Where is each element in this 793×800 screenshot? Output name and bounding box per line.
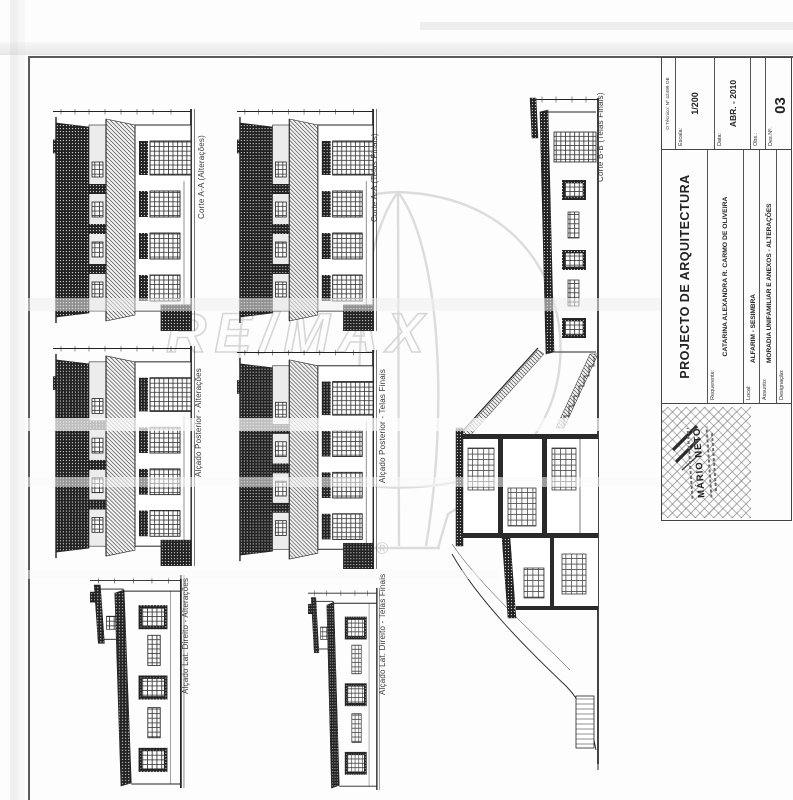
caption-alcado-posterior-telas-finais: Alçado Posterior - Telas Finais [378, 369, 387, 483]
drawing-corte-aa-alteracoes [53, 109, 196, 331]
caption-corte-bb-telas-finais: Corte B-B (Telas Finais) [596, 92, 605, 182]
drawing-corte-aa-telas-finais [237, 109, 378, 331]
field-requerente: Requerente: CATARINA ALEXANDRA R. CARMO … [708, 150, 743, 403]
field-escala: Escala: 1/200 [676, 58, 715, 149]
field-local: Local: ALFARIM - SESIMBRA [744, 150, 761, 403]
field-des-no: Des.Nº. 03 [766, 58, 791, 149]
caption-corte-aa-telas-finais: Corte A-A (Telas Finais) [370, 133, 379, 222]
scanned-architecture-sheet: RE/MAX ® Corte A-A (Alterações) Corte A-… [0, 0, 793, 800]
field-escala-label: Escala: [678, 128, 684, 146]
field-data-label: Data: [717, 133, 723, 146]
drawing-alcado-lat-direito-alteracoes [90, 575, 185, 788]
field-designacao-label: Designação: [779, 369, 785, 400]
stamp-smalltext-line [711, 432, 717, 491]
field-requerente-label: Requerente: [710, 370, 716, 400]
field-assunto-value: MORADIA UNIFAMILIAR E ANEXOS - ALTERAÇÕE… [766, 204, 773, 364]
field-technician: O Técnico: Nº 42499 OE [662, 58, 676, 149]
caption-alcado-lat-direito-telas-finais: Alçado Lat. Direito - Telas Finais [378, 574, 387, 695]
field-designacao: Designação: [777, 150, 791, 403]
titleblock-title: PROJECTO DE ARQUITECTURA [662, 150, 708, 403]
field-requerente-value: CATARINA ALEXANDRA R. CARMO DE OLIVEIRA [722, 150, 729, 403]
drawing-alcado-posterior-alteracoes [53, 346, 196, 566]
caption-alcado-lat-direito-alteracoes: Alçado Lat. Direito - Alterações [181, 578, 190, 694]
field-local-value: ALFARIM - SESIMBRA [750, 294, 757, 363]
field-data-value: ABR. - 2010 [728, 58, 738, 149]
field-local-label: Local: [746, 385, 752, 400]
stamp-area: MÁRIO NETO [662, 403, 791, 520]
field-assunto: Assunto: MORADIA UNIFAMILIAR E ANEXOS - … [760, 150, 777, 403]
caption-corte-aa-alteracoes: Corte A-A (Alterações) [197, 135, 206, 219]
drawing-corte-bb-telas-finais [450, 95, 600, 790]
drawing-alcado-lat-direito-telas-finais [308, 588, 380, 790]
field-escala-value: 1/200 [690, 58, 700, 149]
title-block: MÁRIO NETO PROJECTO DE ARQUITECTURA Requ… [661, 57, 792, 521]
field-assunto-label: Assunto: [762, 379, 768, 400]
field-data: Data: ABR. - 2010 [715, 58, 750, 149]
field-des-no-value: 03 [772, 62, 789, 149]
stamp-hatch: MÁRIO NETO [662, 407, 751, 518]
caption-alcado-posterior-alteracoes: Alçado Posterior - Alterações [194, 368, 203, 477]
drawing-alcado-posterior-telas-finais [237, 350, 378, 569]
field-obs-label: Obs.: [753, 133, 759, 146]
field-obs: Obs.: [751, 58, 767, 149]
